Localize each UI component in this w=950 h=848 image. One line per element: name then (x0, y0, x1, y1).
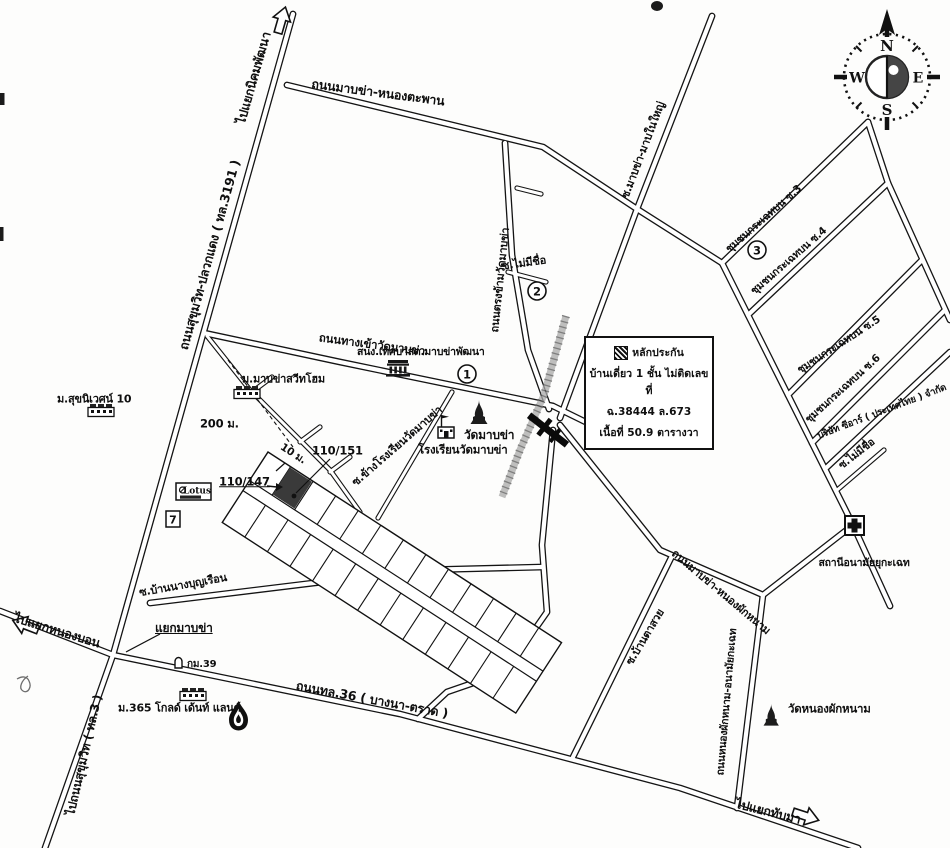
school-icon (438, 415, 454, 438)
map-label-m365: ม.365 โกลด์ เด้นท์ แลนด์ (118, 703, 241, 714)
village-icon-suknivet (88, 404, 114, 417)
municipal-office-icon (386, 360, 410, 377)
info-line-house: บ้านเดี่ยว 1 ชั้น ไม่ติดเลขที่ (589, 365, 709, 399)
junction-number-2: 2 (528, 282, 546, 300)
map-label-d200: 200 ม. (200, 418, 239, 430)
collateral-info-box: หลักประกัน บ้านเดี่ยว 1 ชั้น ไม่ติดเลขที… (584, 336, 714, 450)
temple-icon-wat-mapkha (471, 400, 488, 424)
map-label-wat-nong: วัดหนองผักหนาม (788, 703, 871, 715)
svg-text:1: 1 (463, 368, 471, 382)
temple-icon-wat-nongphaknam (764, 704, 779, 726)
village-icon-m365 (180, 688, 206, 701)
village-icon-sweethome (234, 386, 260, 399)
map-label-km39: กม.39 (187, 660, 216, 670)
compass-e: E (913, 71, 924, 87)
map-label-tessaban: สนง.เทศบาลต.มาบข่าพัฒนา (357, 347, 485, 358)
km-post-icon (175, 658, 182, 669)
compass-rose: N E S W (834, 9, 940, 130)
map-label-suknivet: ม.สุขนิเวศน์ 10 (57, 394, 131, 405)
scan-artifact (0, 1, 663, 241)
map-label-h151: 110/151 (312, 445, 363, 457)
lotus-store-sign: Lotus (176, 483, 211, 500)
svg-text:3: 3 (753, 244, 761, 258)
junction-number-3: 3 (748, 241, 766, 259)
compass-n: N (880, 37, 894, 55)
health-station-cross-icon (845, 516, 864, 535)
scanned-site-map: Lotus 7 1 2 3 (0, 0, 950, 848)
pen-scribble (17, 676, 30, 692)
map-label-yaek-mapkha: แยกมาบข่า (155, 622, 213, 634)
compass-s: S (882, 101, 893, 119)
map-label-sweethome: ม.มาบข่าสวีทโฮม (242, 374, 325, 385)
map-canvas: Lotus 7 1 2 3 (0, 0, 950, 848)
svg-text:2: 2 (533, 285, 541, 299)
svg-text:7: 7 (169, 514, 177, 527)
info-line-collateral: หลักประกัน (614, 344, 684, 361)
map-label-school: โรงเรียนวัดมาบข่า (418, 444, 507, 456)
seven-eleven-icon: 7 (166, 511, 180, 527)
map-label-anamai: สถานีอนามัยยุกะเฉท (818, 558, 909, 569)
map-label-wat-mapkha: วัดมาบข่า (464, 429, 514, 441)
info-line-area: เนื้อที่ 50.9 ตารางวา (599, 424, 698, 441)
hatch-square-icon (614, 346, 628, 360)
lotus-store-label: Lotus (183, 487, 211, 497)
info-line-deed: ฉ.38444 ล.673 (607, 403, 691, 420)
junction-number-1: 1 (458, 365, 476, 383)
map-label-h147: 110/147 (219, 476, 270, 488)
compass-w: W (848, 71, 865, 87)
